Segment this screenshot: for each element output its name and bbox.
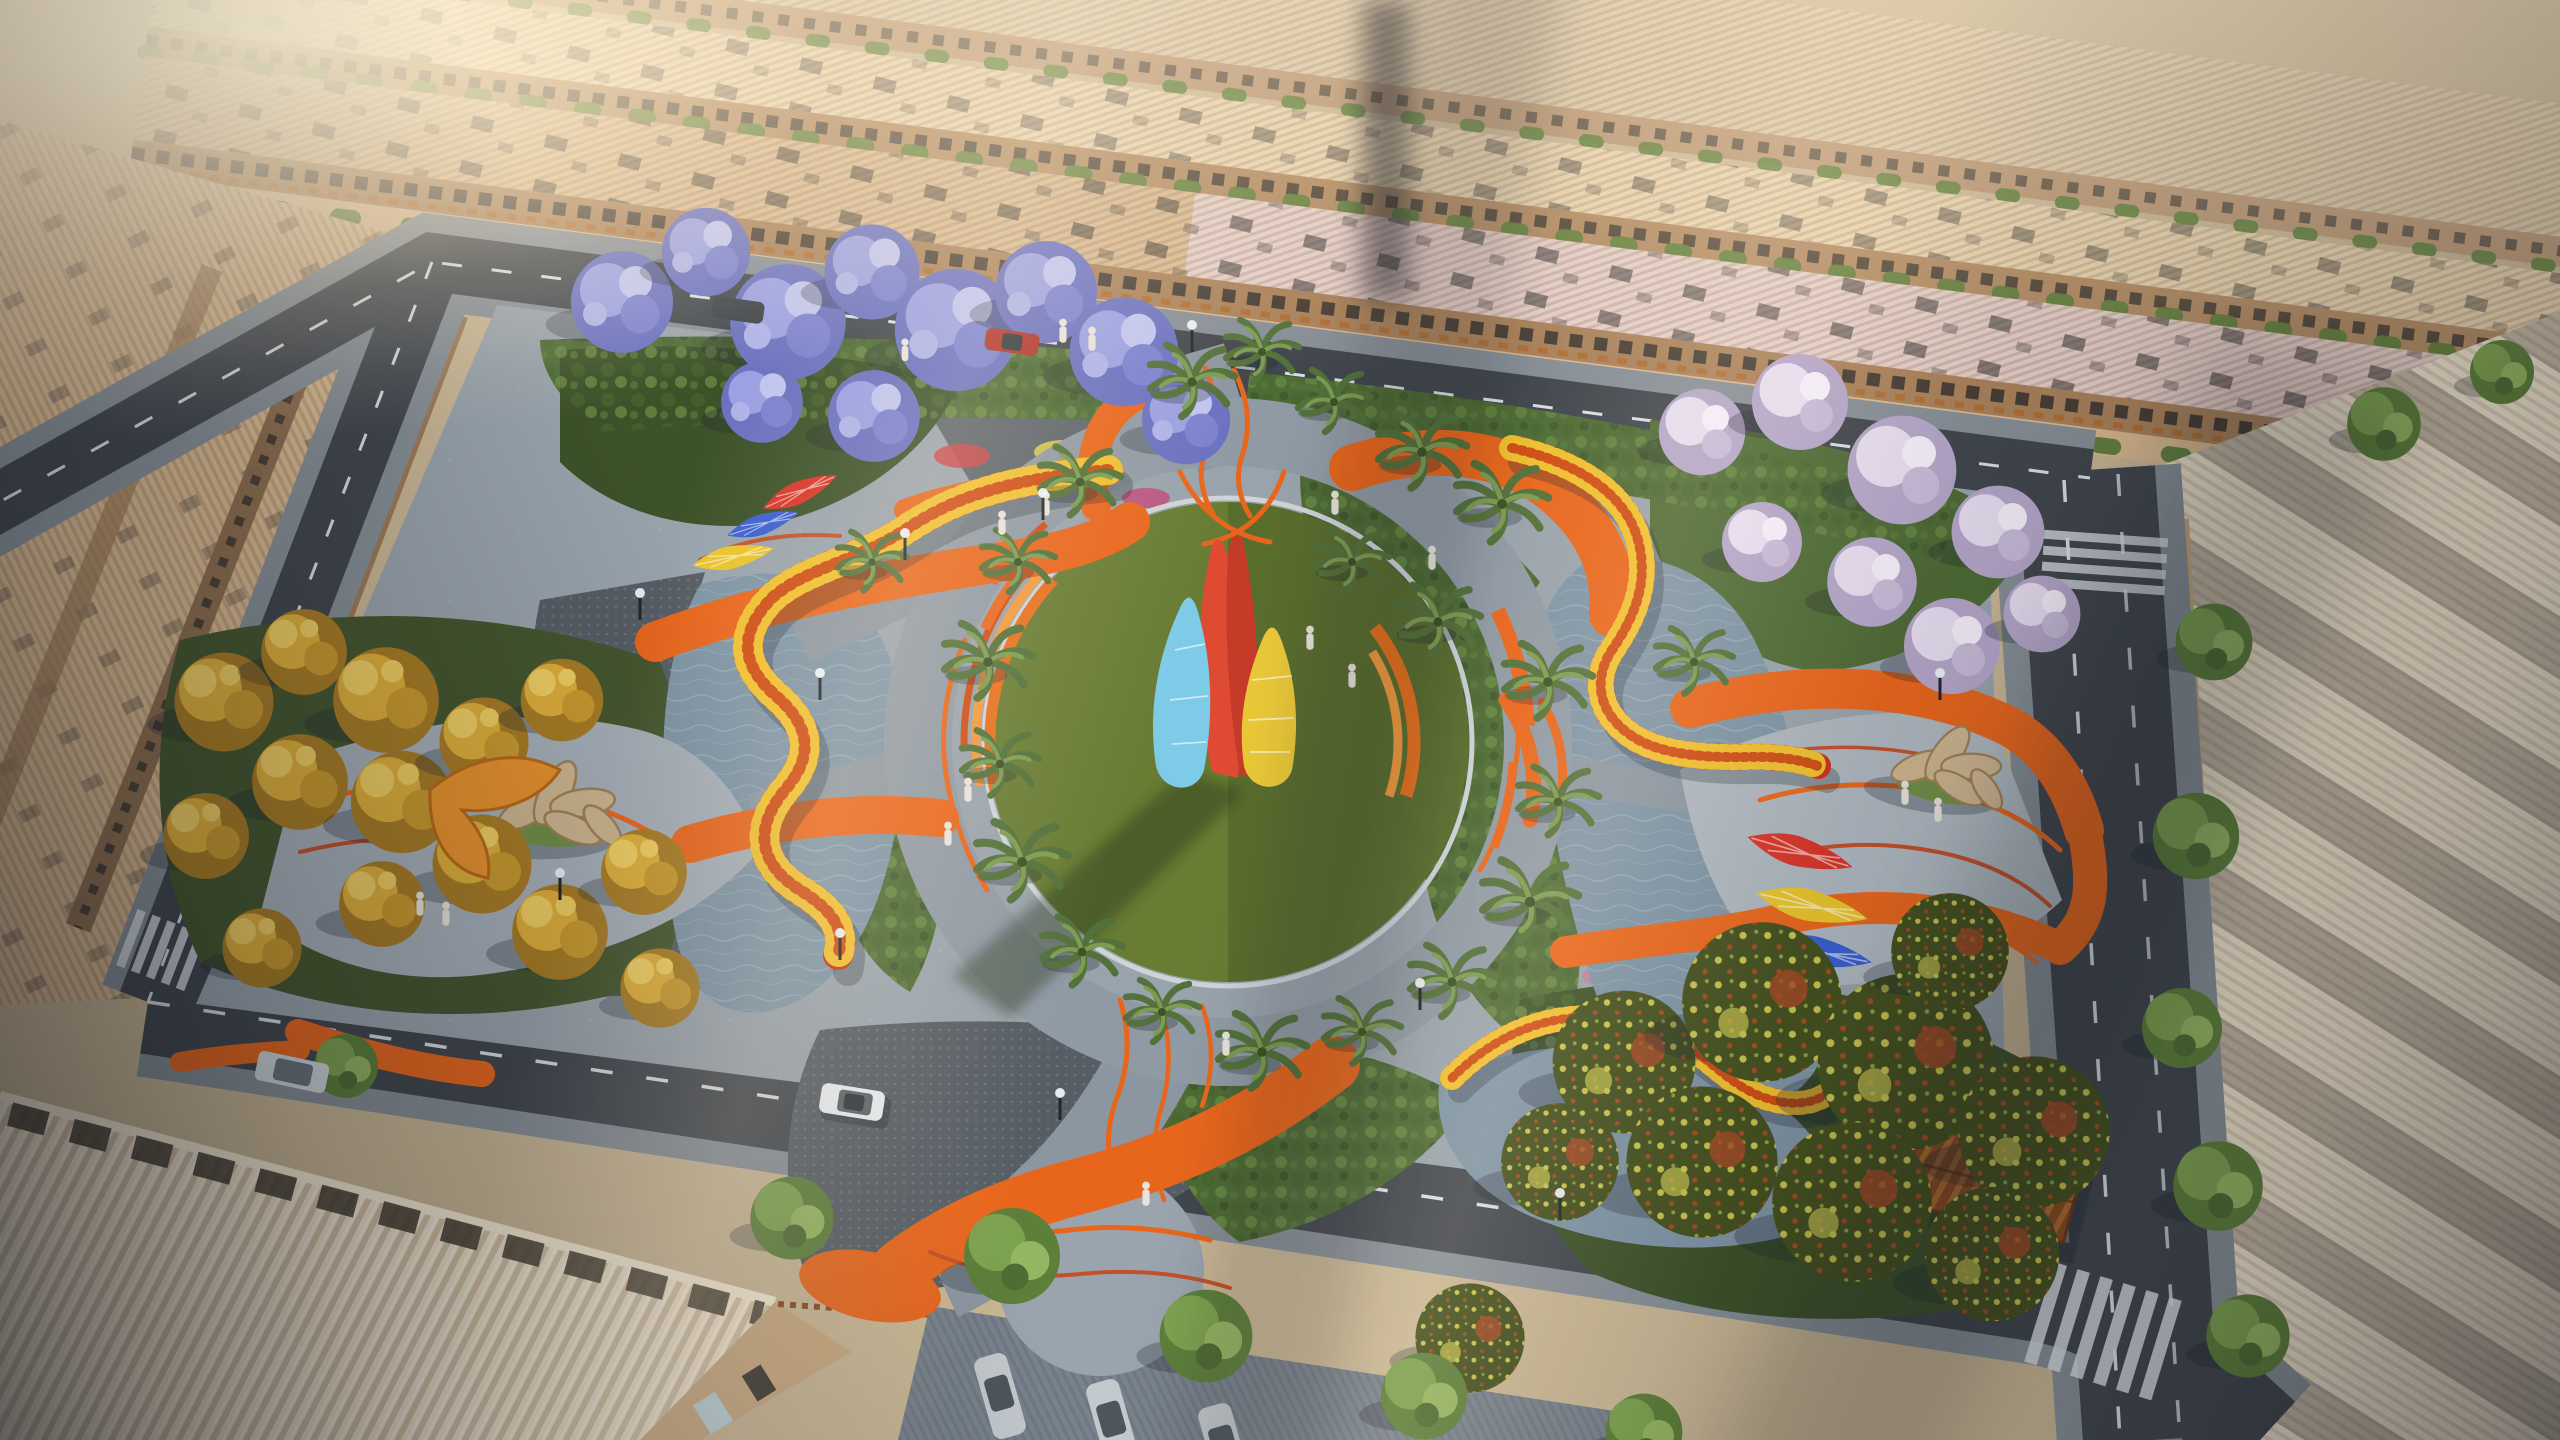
person (901, 339, 908, 362)
person (964, 778, 972, 802)
person (1306, 626, 1314, 650)
person (1142, 1182, 1150, 1206)
person (1428, 546, 1436, 570)
person (442, 902, 450, 926)
street-tree (730, 1176, 834, 1259)
person (1348, 664, 1356, 688)
person (998, 511, 1006, 535)
aerial-park-render (0, 0, 2560, 1440)
person (1088, 327, 1096, 351)
person (1934, 798, 1942, 822)
scene-canvas (0, 0, 2560, 1440)
person (1901, 781, 1909, 805)
person (1222, 1032, 1230, 1056)
person (944, 822, 952, 846)
person (1059, 319, 1067, 343)
person (1331, 491, 1339, 515)
person (416, 892, 424, 916)
